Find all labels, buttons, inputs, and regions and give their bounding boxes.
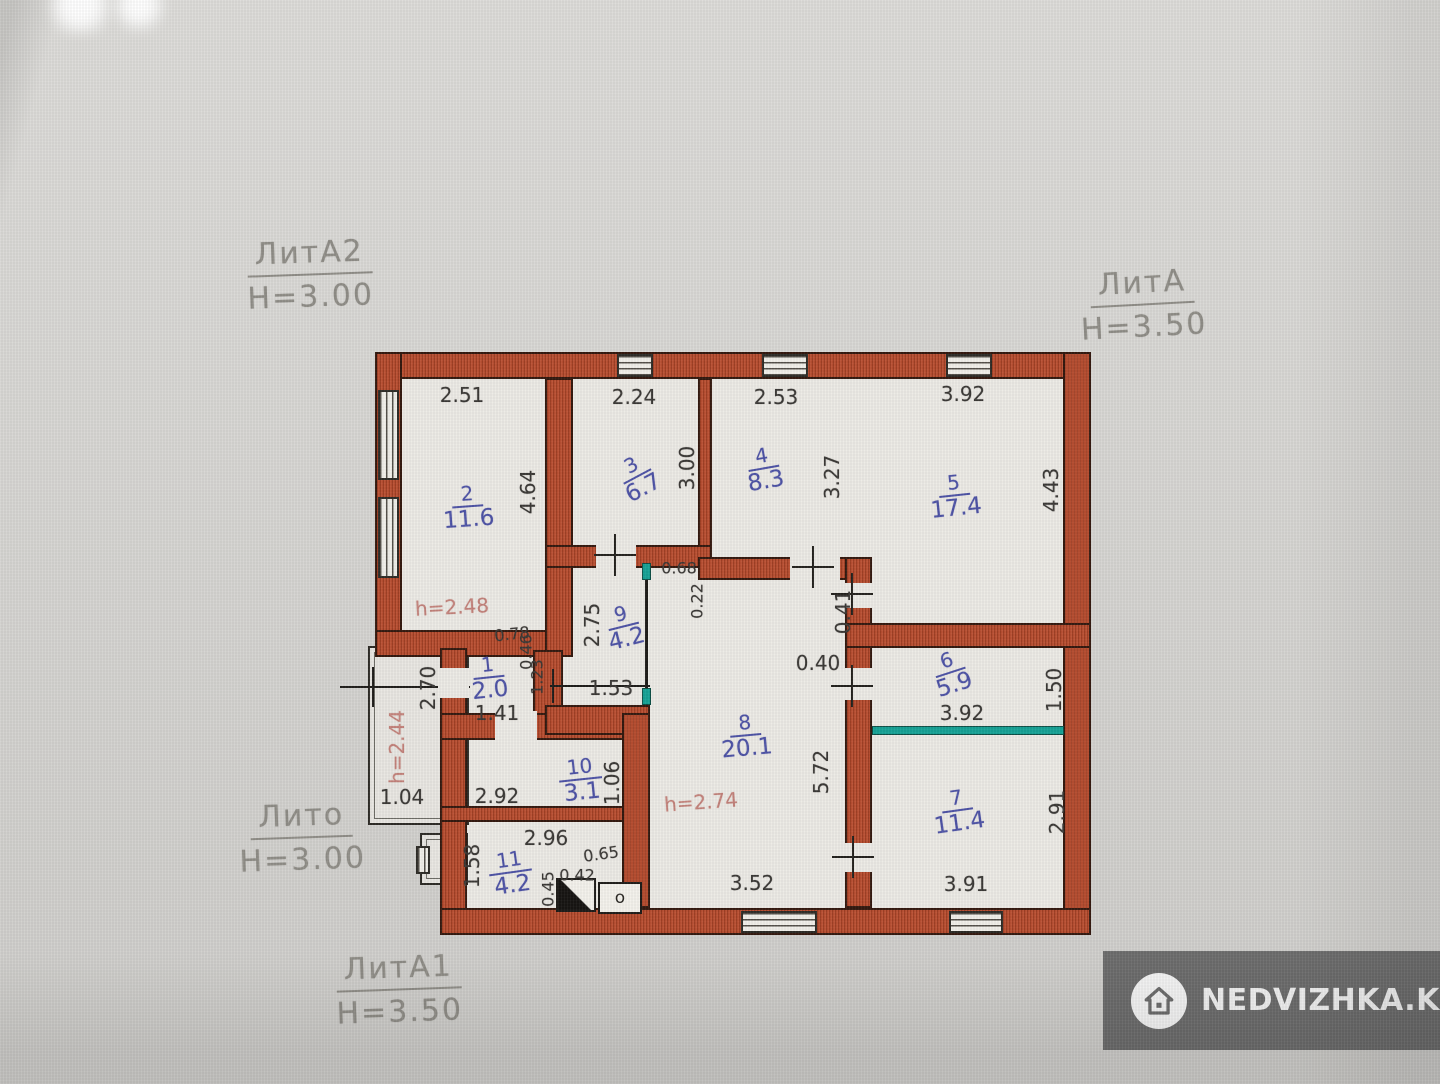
watermark-bar: NEDVIZHKA.KZ: [1103, 951, 1440, 1050]
watermark-text: NEDVIZHKA.KZ: [1201, 983, 1440, 1018]
dim-porch-depth: 2.70: [416, 666, 440, 711]
dim-room4-depth: 3.27: [820, 455, 844, 500]
label-lit-a: ЛитА H=3.50: [1078, 262, 1208, 348]
dim-room9-width: 1.53: [589, 676, 634, 700]
dim-040: 0.40: [796, 651, 841, 675]
floorplan-drawing: о 2.51 4.64 2.24 3.00 2.53 3.27 3.92 4.4…: [0, 0, 1440, 1084]
dim-tick: [552, 669, 554, 703]
dim-042: 0.42: [559, 866, 595, 885]
lit-name: Лито: [250, 797, 353, 841]
floorplan-photo: о 2.51 4.64 2.24 3.00 2.53 3.27 3.92 4.4…: [0, 0, 1440, 1084]
label-lit-a1: ЛитА1 H=3.50: [334, 948, 463, 1031]
height-note-room8: h=2.74: [663, 787, 738, 816]
dim-022: 0.22: [688, 583, 707, 619]
room-area: 11.6: [442, 506, 495, 535]
label-lit-a2: ЛитА2 H=3.00: [245, 233, 374, 316]
lit-name: ЛитА2: [246, 233, 372, 277]
wall-room10-right: [622, 713, 650, 908]
window: [741, 911, 817, 933]
dim-room2-depth: 4.64: [516, 470, 540, 515]
dim-room6-depth: 1.50: [1042, 668, 1066, 713]
partition-room9: [645, 563, 648, 705]
partition-cap: [642, 688, 651, 705]
lit-height: H=3.50: [1080, 306, 1208, 348]
dim-porch-width: 1.04: [380, 785, 425, 809]
lit-height: H=3.00: [239, 840, 367, 879]
dim-123: 1.23: [528, 659, 547, 695]
dim-room10-width: 2.92: [475, 784, 520, 808]
window: [378, 497, 399, 578]
dim-068: 0.68: [661, 559, 697, 578]
room-area: 20.1: [720, 734, 773, 764]
dim-room11-depth: 1.58: [460, 844, 484, 889]
dim-room8-width: 3.52: [730, 871, 775, 895]
room-area: 3.1: [559, 778, 605, 808]
door-opening: [790, 555, 840, 582]
window: [378, 390, 399, 480]
height-note-porch: h=2.44: [385, 710, 409, 784]
dim-045: 0.45: [539, 871, 558, 907]
room-label-7: 7 11.4: [929, 784, 987, 840]
wall-room10-room11: [440, 806, 645, 822]
dim-room6-width: 3.92: [940, 701, 985, 725]
height-note-room2: h=2.48: [414, 593, 489, 621]
dim-room3-width: 2.24: [612, 385, 657, 409]
room-area: 17.4: [929, 494, 983, 525]
o-mark-box: о: [598, 882, 642, 914]
dim-room4-width: 2.53: [754, 385, 799, 409]
room-label-11: 11 4.2: [486, 847, 536, 902]
lit-name: ЛитА: [1089, 263, 1195, 308]
dim-room7-width: 3.91: [944, 872, 989, 896]
room-label-8: 8 20.1: [718, 710, 773, 764]
lit-height: H=3.50: [336, 992, 464, 1031]
wall-room5-bottom: [845, 623, 1091, 648]
room-label-5: 5 17.4: [927, 470, 983, 524]
dim-tick: [372, 667, 374, 707]
door-opening: [843, 668, 874, 700]
wall-room3-room4: [698, 378, 712, 568]
dim-room7-depth: 2.91: [1045, 790, 1069, 835]
window: [949, 911, 1003, 933]
window: [762, 354, 808, 377]
dim-room5-width: 3.92: [941, 382, 986, 406]
partition-cap: [642, 563, 651, 580]
partition-room6-room7: [872, 726, 1064, 735]
dim-room3-depth: 3.00: [675, 446, 699, 491]
dim-041: 0.41: [831, 590, 855, 635]
room-number: 2: [451, 482, 483, 508]
room-label-2: 2 11.6: [441, 482, 496, 535]
dim-room1-width: 1.41: [475, 701, 520, 725]
window: [946, 354, 992, 377]
o-mark: о: [615, 888, 625, 908]
dim-room5-depth: 4.43: [1039, 468, 1063, 513]
label-lit-o: Лито H=3.00: [237, 796, 366, 879]
dim-room8-depth: 5.72: [809, 750, 833, 795]
wall-room2-room3: [545, 378, 573, 657]
dim-room2-width: 2.51: [440, 383, 485, 407]
window: [416, 846, 430, 874]
house-icon: [1131, 973, 1187, 1029]
room-label-10: 10 3.1: [557, 754, 605, 808]
lit-name: ЛитА1: [335, 948, 461, 992]
window: [617, 354, 653, 377]
door-opening: [596, 543, 636, 570]
dim-room11-width: 2.96: [524, 826, 569, 850]
room-area: 2.0: [471, 676, 510, 705]
room-label-1: 1 2.0: [468, 653, 510, 706]
door-opening: [438, 668, 469, 698]
lit-height: H=3.00: [247, 277, 375, 316]
